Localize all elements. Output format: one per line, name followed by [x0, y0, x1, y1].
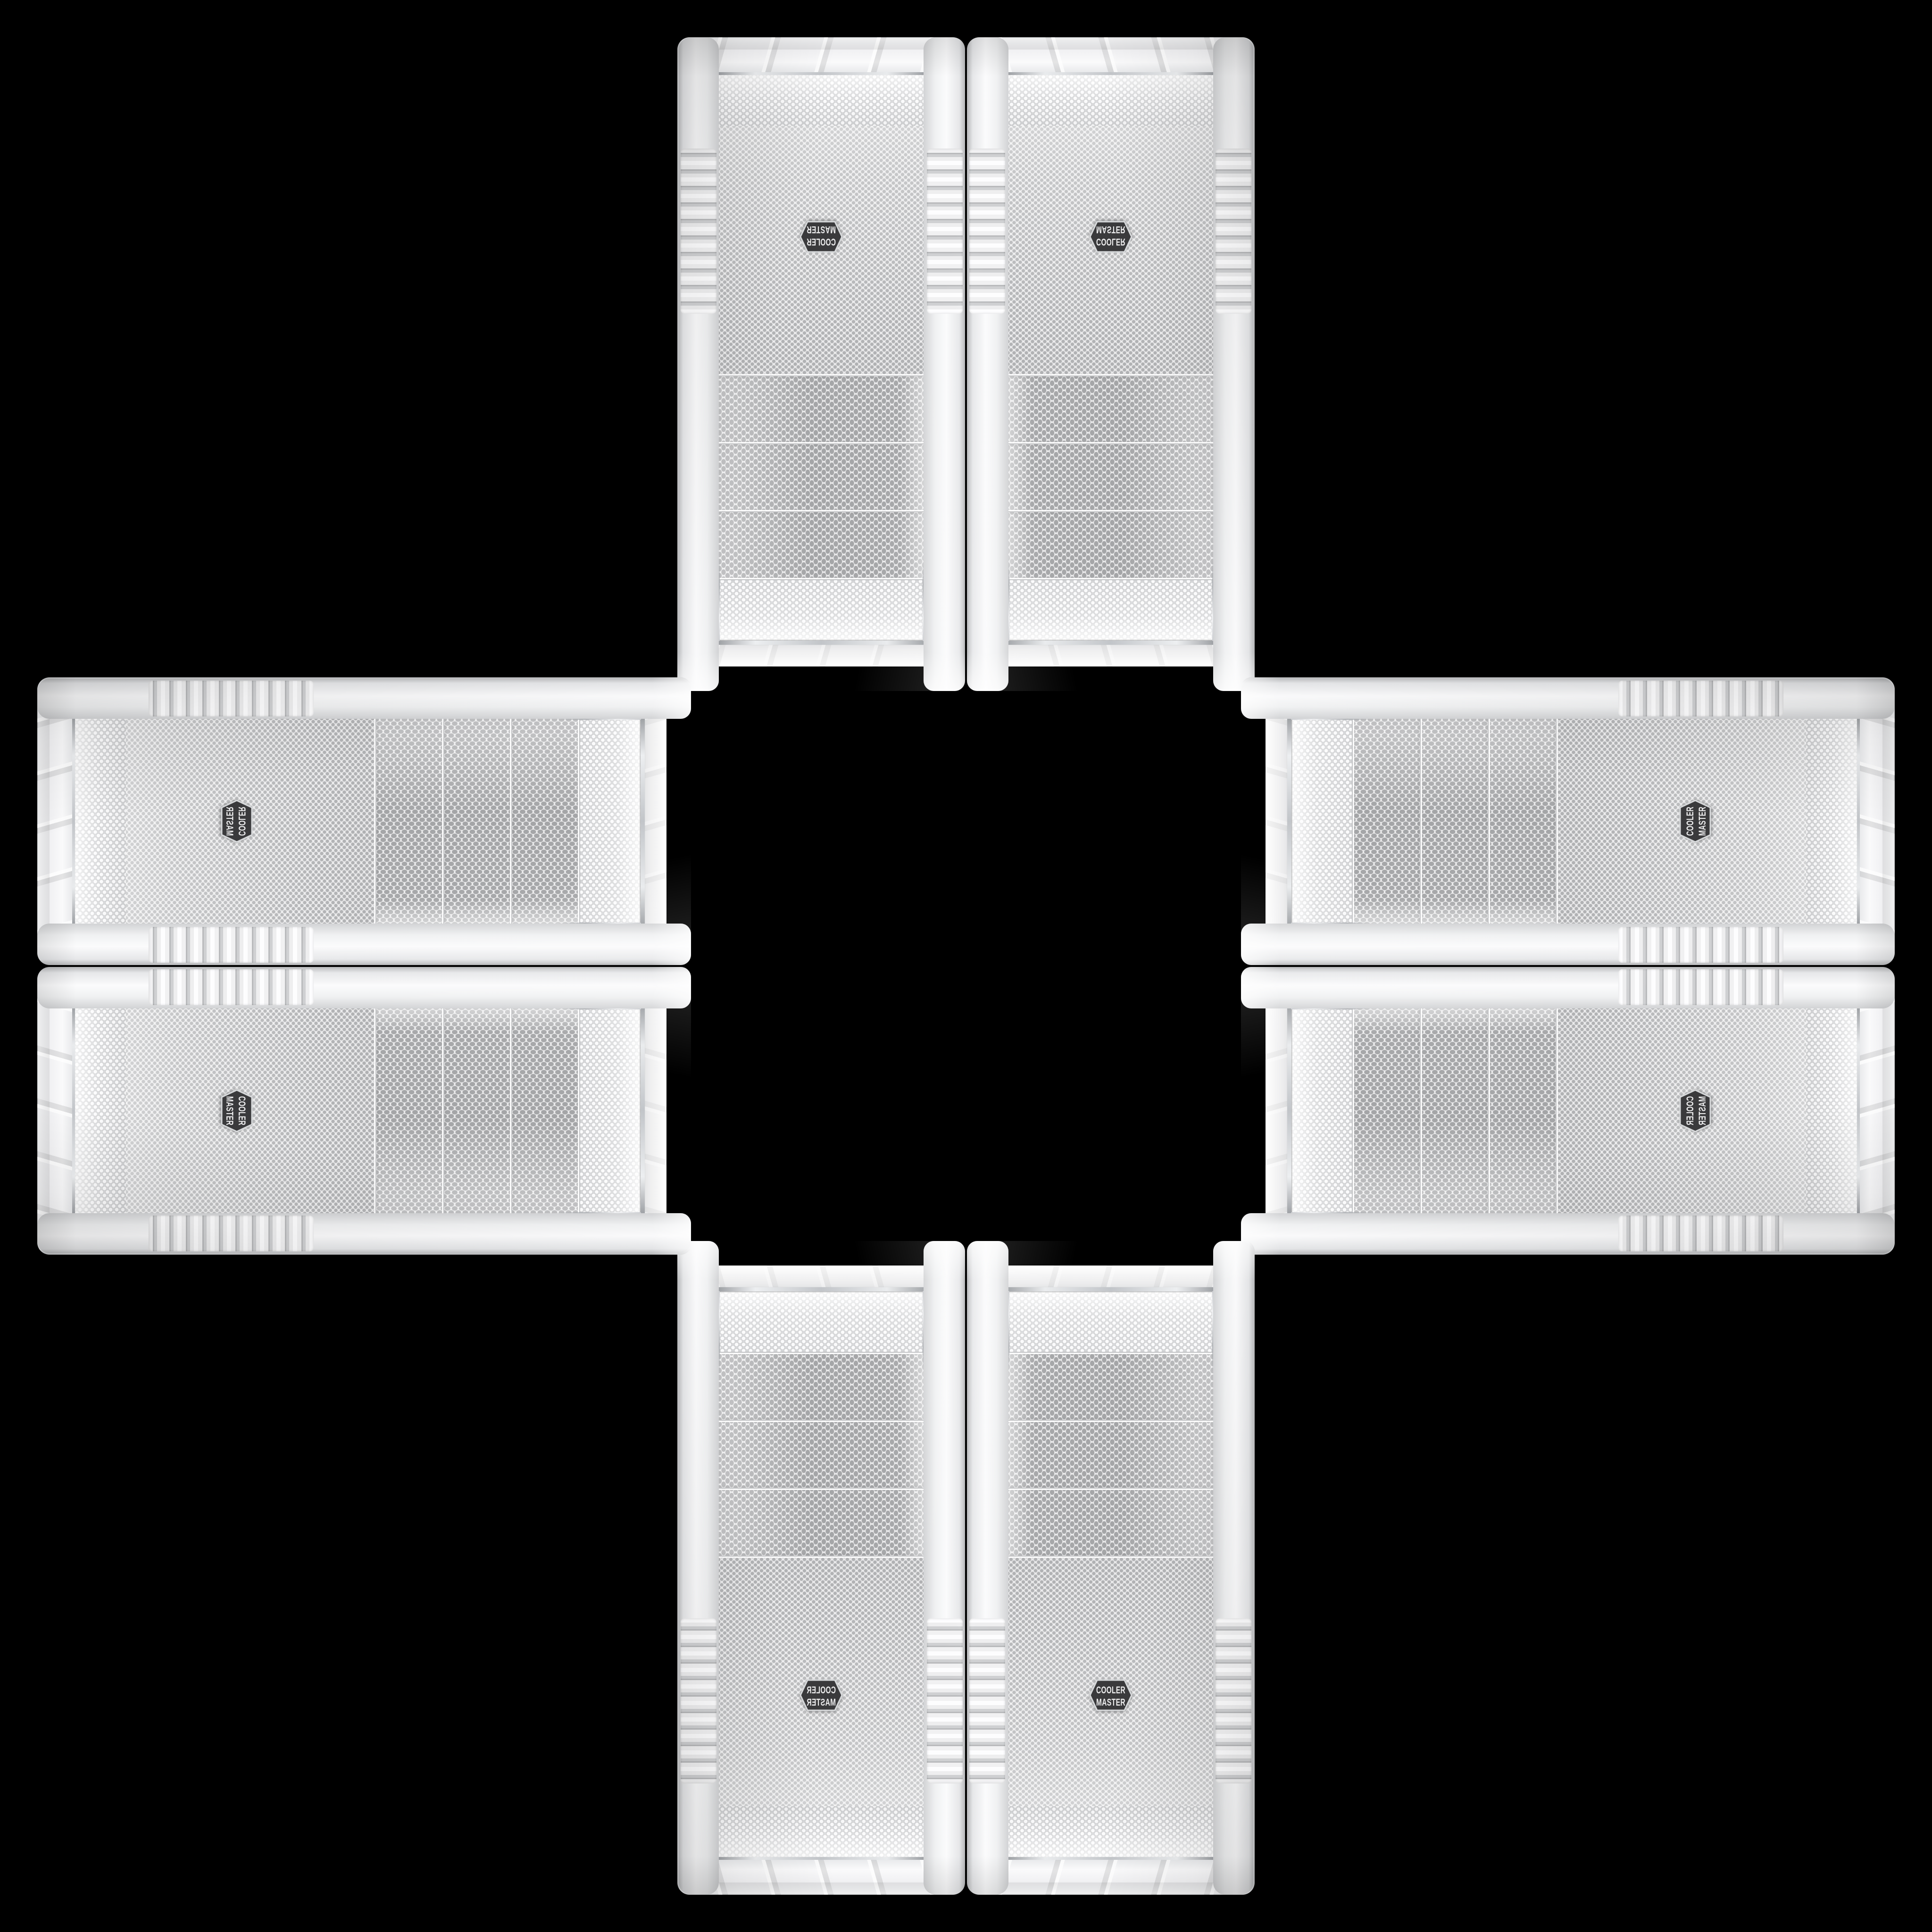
rail-grip-ribs-left: [1618, 969, 1783, 1005]
case-left-bottom: COOLER MASTER: [37, 968, 691, 1253]
case-top-right: COOLER MASTER: [968, 37, 1253, 691]
bottom-cap-bevel-ridges: [682, 1860, 961, 1895]
mesh-main-panel: COOLER MASTER: [126, 1008, 376, 1214]
top-cap-bevel-ridges: [682, 641, 961, 666]
side-rail-left: [924, 1241, 965, 1895]
mesh-fan-grille-bottom: [68, 718, 126, 924]
top-cap-bevel-ridges: [641, 682, 666, 961]
mesh-main-panel: COOLER MASTER: [1008, 1556, 1214, 1806]
case-bottom-cap: [37, 971, 72, 1250]
rail-grip-ribs-right: [681, 1618, 716, 1783]
cooler-master-logo-icon: COOLER MASTER: [1679, 799, 1711, 843]
mesh-bay-cover-2: [1420, 718, 1488, 924]
top-cap-bevel-ridges: [971, 641, 1250, 666]
case-bottom-cap: [971, 1860, 1250, 1895]
badge-text-line2: MASTER: [807, 1697, 836, 1708]
mesh-fan-grille-bottom: [68, 1008, 126, 1214]
mesh-fan-grille-bottom: [1008, 68, 1214, 126]
case-bottom-left: COOLER MASTER: [679, 1241, 964, 1895]
chrome-trim-top: [718, 1287, 924, 1291]
case-front-panel: COOLER MASTER: [679, 1241, 964, 1895]
bottom-cap-bevel-ridges: [971, 37, 1250, 72]
side-rail-left: [967, 1241, 1008, 1895]
mesh-bay-cover-1: [512, 1008, 580, 1214]
rail-grip-ribs-right: [681, 149, 716, 314]
side-rail-right: [1213, 37, 1255, 691]
side-rail-right: [37, 677, 691, 719]
bottom-cap-bevel-ridges: [1860, 682, 1895, 961]
badge-text-line1: COOLER: [236, 1096, 247, 1125]
cooler-master-logo-icon: COOLER MASTER: [221, 1089, 253, 1133]
rail-grip-ribs-right: [1618, 1216, 1783, 1251]
badge-text-line1: COOLER: [1685, 807, 1696, 836]
bottom-cap-bevel-ridges: [37, 971, 72, 1250]
mesh-bay-cover-3: [718, 376, 924, 444]
mesh-main-panel: COOLER MASTER: [718, 1556, 924, 1806]
case-right-top: COOLER MASTER: [1241, 679, 1895, 964]
rail-grip-ribs-right: [149, 681, 314, 716]
case-mesh-area: COOLER MASTER: [1286, 718, 1860, 924]
chrome-trim-top: [1287, 1008, 1291, 1214]
cooler-master-logo-badge: COOLER MASTER: [221, 799, 253, 843]
cooler-master-logo-badge: COOLER MASTER: [1679, 1089, 1711, 1133]
mesh-bay-cover-3: [1488, 718, 1556, 924]
case-top-cap: [641, 682, 666, 961]
case-bottom-cap: [682, 1860, 961, 1895]
case-right-bottom: COOLER MASTER: [1241, 968, 1895, 1253]
case-bottom-cap: [1860, 971, 1895, 1250]
side-rail-left: [1241, 967, 1895, 1008]
mesh-bay-cover-3: [1488, 1008, 1556, 1214]
badge-text-line2: MASTER: [1697, 807, 1708, 836]
mesh-bay-cover-1: [1008, 1352, 1214, 1420]
cooler-master-logo-icon: COOLER MASTER: [1089, 221, 1133, 253]
case-front-panel: COOLER MASTER: [37, 679, 691, 964]
side-rail-left: [37, 924, 691, 965]
mesh-bay-cover-3: [1008, 1488, 1214, 1556]
mesh-bay-cover-2: [718, 444, 924, 512]
mesh-bay-cover-2: [718, 1420, 924, 1488]
badge-text-line1: COOLER: [1096, 1685, 1125, 1696]
badge-text-line1: COOLER: [807, 1685, 836, 1696]
case-front-panel: COOLER MASTER: [968, 37, 1253, 691]
rail-grip-ribs-right: [1618, 681, 1783, 716]
rail-grip-ribs-left: [927, 149, 963, 314]
case-front-panel: COOLER MASTER: [679, 37, 964, 691]
mesh-bay-cover-2: [444, 718, 512, 924]
cooler-master-logo-icon: COOLER MASTER: [799, 1679, 843, 1711]
case-mesh-area: COOLER MASTER: [718, 72, 924, 646]
rail-grip-ribs-left: [149, 927, 314, 963]
mesh-fan-grille-bottom: [1806, 1008, 1864, 1214]
case-top-cap: [641, 971, 666, 1250]
chrome-trim-top: [1287, 718, 1291, 924]
case-mesh-area: COOLER MASTER: [1008, 72, 1214, 646]
mesh-fan-grille-bottom: [1806, 718, 1864, 924]
case-top-left: COOLER MASTER: [679, 37, 964, 691]
chrome-trim-top: [641, 1008, 645, 1214]
side-rail-left: [924, 37, 965, 691]
badge-text-line2: MASTER: [224, 1096, 235, 1125]
badge-text-line1: COOLER: [1096, 236, 1125, 247]
case-front-panel: COOLER MASTER: [1241, 968, 1895, 1253]
side-rail-right: [677, 1241, 719, 1895]
mesh-bay-cover-3: [376, 1008, 444, 1214]
case-bottom-cap: [1860, 682, 1895, 961]
side-rail-right: [677, 37, 719, 691]
mesh-bay-cover-1: [718, 512, 924, 580]
mesh-bay-cover-1: [1352, 718, 1420, 924]
case-mesh-area: COOLER MASTER: [1286, 1008, 1860, 1214]
cooler-master-logo-badge: COOLER MASTER: [1089, 221, 1133, 253]
mesh-fan-grille-top: [1008, 580, 1214, 646]
bottom-cap-bevel-ridges: [1860, 971, 1895, 1250]
mesh-fan-grille-bottom: [718, 1806, 924, 1864]
case-left-top: COOLER MASTER: [37, 679, 691, 964]
mesh-fan-grille-top: [1286, 1008, 1352, 1214]
cooler-master-logo-icon: COOLER MASTER: [1679, 1089, 1711, 1133]
rail-grip-ribs-right: [1216, 1618, 1251, 1783]
rail-grip-ribs-right: [149, 1216, 314, 1251]
badge-text-line2: MASTER: [1096, 224, 1125, 235]
scene: COOLER MASTER: [0, 0, 1932, 1932]
bottom-cap-bevel-ridges: [37, 682, 72, 961]
bottom-cap-bevel-ridges: [682, 37, 961, 72]
rail-grip-ribs-left: [149, 969, 314, 1005]
side-rail-right: [1213, 1241, 1255, 1895]
side-rail-right: [37, 1213, 691, 1255]
rail-grip-ribs-left: [927, 1618, 963, 1783]
cooler-master-logo-badge: COOLER MASTER: [799, 221, 843, 253]
mesh-bay-cover-2: [1008, 444, 1214, 512]
cooler-master-logo-badge: COOLER MASTER: [799, 1679, 843, 1711]
bottom-cap-bevel-ridges: [971, 1860, 1250, 1895]
rail-grip-ribs-right: [1216, 149, 1251, 314]
top-cap-bevel-ridges: [641, 971, 666, 1250]
rail-grip-ribs-left: [969, 1618, 1005, 1783]
mesh-bay-cover-2: [1420, 1008, 1488, 1214]
rail-grip-ribs-left: [969, 149, 1005, 314]
mesh-fan-grille-top: [1008, 1286, 1214, 1352]
mesh-bay-cover-2: [1008, 1420, 1214, 1488]
mesh-bay-cover-1: [512, 718, 580, 924]
mesh-fan-grille-top: [580, 718, 646, 924]
cooler-master-logo-badge: COOLER MASTER: [221, 1089, 253, 1133]
case-mesh-area: COOLER MASTER: [718, 1286, 924, 1860]
mesh-bay-cover-3: [376, 718, 444, 924]
mesh-main-panel: COOLER MASTER: [1556, 718, 1806, 924]
mesh-fan-grille-top: [718, 1286, 924, 1352]
cooler-master-logo-badge: COOLER MASTER: [1679, 799, 1711, 843]
side-rail-left: [37, 967, 691, 1008]
case-mesh-area: COOLER MASTER: [72, 1008, 646, 1214]
case-mesh-area: COOLER MASTER: [72, 718, 646, 924]
cooler-master-logo-badge: COOLER MASTER: [1089, 1679, 1133, 1711]
case-mesh-area: COOLER MASTER: [1008, 1286, 1214, 1860]
badge-text-line2: MASTER: [807, 224, 836, 235]
side-rail-left: [1241, 924, 1895, 965]
badge-text-line1: COOLER: [1685, 1096, 1696, 1125]
case-bottom-cap: [971, 37, 1250, 72]
badge-text-line1: COOLER: [807, 236, 836, 247]
mesh-fan-grille-bottom: [1008, 1806, 1214, 1864]
case-front-panel: COOLER MASTER: [968, 1241, 1253, 1895]
rail-grip-ribs-left: [1618, 927, 1783, 963]
badge-text-line2: MASTER: [1697, 1096, 1708, 1125]
case-bottom-right: COOLER MASTER: [968, 1241, 1253, 1895]
case-bottom-cap: [682, 37, 961, 72]
chrome-trim-top: [1008, 1287, 1214, 1291]
case-top-cap: [971, 641, 1250, 666]
mesh-main-panel: COOLER MASTER: [126, 718, 376, 924]
mesh-fan-grille-top: [718, 580, 924, 646]
case-bottom-cap: [37, 682, 72, 961]
mesh-bay-cover-3: [718, 1488, 924, 1556]
chrome-trim-top: [1008, 641, 1214, 645]
cooler-master-logo-icon: COOLER MASTER: [221, 799, 253, 843]
side-rail-left: [967, 37, 1008, 691]
case-front-panel: COOLER MASTER: [37, 968, 691, 1253]
case-top-cap: [682, 641, 961, 666]
mesh-main-panel: COOLER MASTER: [1556, 1008, 1806, 1214]
mesh-bay-cover-3: [1008, 376, 1214, 444]
mesh-main-panel: COOLER MASTER: [1008, 126, 1214, 376]
mesh-bay-cover-1: [718, 1352, 924, 1420]
mesh-bay-cover-1: [1352, 1008, 1420, 1214]
case-front-panel: COOLER MASTER: [1241, 679, 1895, 964]
cooler-master-logo-icon: COOLER MASTER: [1089, 1679, 1133, 1711]
chrome-trim-top: [718, 641, 924, 645]
mesh-fan-grille-top: [580, 1008, 646, 1214]
badge-text-line1: COOLER: [236, 807, 247, 836]
chrome-trim-top: [641, 718, 645, 924]
cooler-master-logo-icon: COOLER MASTER: [799, 221, 843, 253]
side-rail-right: [1241, 677, 1895, 719]
mesh-main-panel: COOLER MASTER: [718, 126, 924, 376]
side-rail-right: [1241, 1213, 1895, 1255]
mesh-fan-grille-top: [1286, 718, 1352, 924]
mesh-fan-grille-bottom: [718, 68, 924, 126]
mesh-bay-cover-2: [444, 1008, 512, 1214]
badge-text-line2: MASTER: [1096, 1697, 1125, 1708]
badge-text-line2: MASTER: [224, 807, 235, 836]
mesh-bay-cover-1: [1008, 512, 1214, 580]
